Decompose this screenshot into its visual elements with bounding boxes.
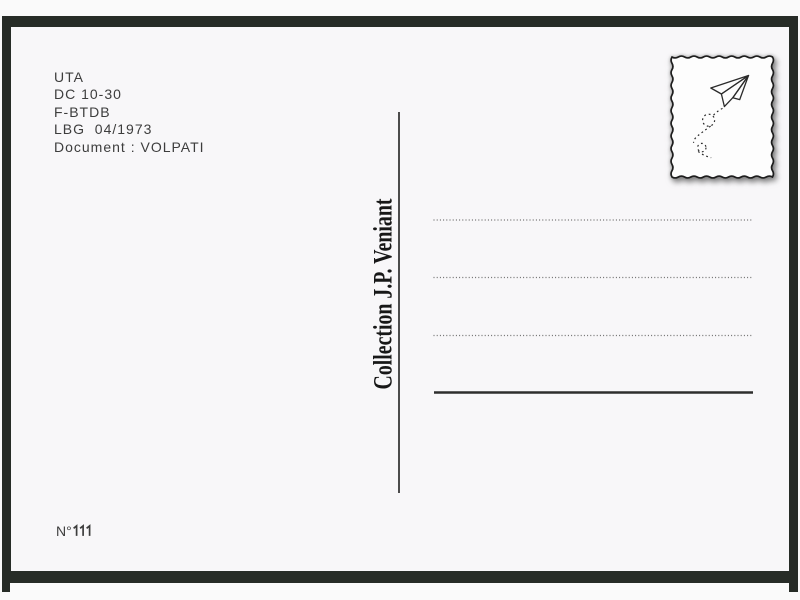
svg-text:Collection J.P. Veniant: Collection J.P. Veniant	[369, 198, 398, 389]
